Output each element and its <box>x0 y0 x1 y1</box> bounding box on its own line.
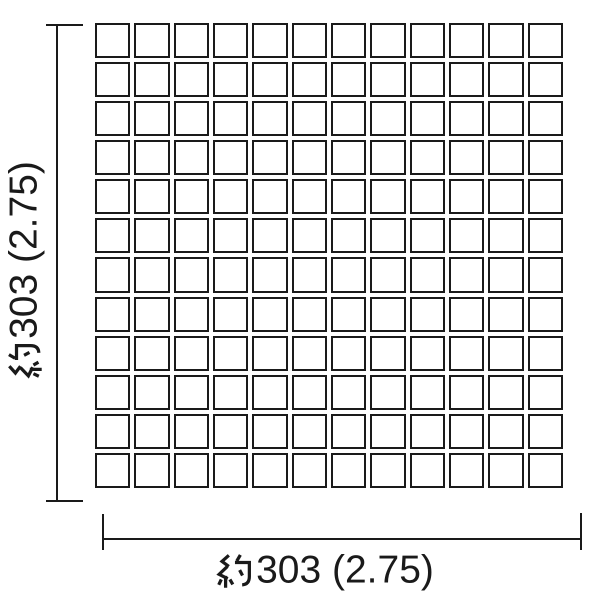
tile <box>213 414 248 449</box>
tile <box>331 375 366 410</box>
tile <box>134 62 169 97</box>
tile <box>252 140 287 175</box>
tile <box>292 179 327 214</box>
dimension-diagram-canvas: 303 (2.75) 303 (2.75) <box>0 0 600 600</box>
tile <box>331 414 366 449</box>
tile <box>370 297 405 332</box>
tile <box>174 297 209 332</box>
tile <box>331 336 366 371</box>
tile <box>528 257 563 292</box>
tile <box>488 414 523 449</box>
kanji-yaku-glyph <box>216 553 253 589</box>
tile <box>174 453 209 488</box>
tile <box>174 140 209 175</box>
tile <box>174 101 209 136</box>
tile <box>410 179 445 214</box>
tile <box>252 257 287 292</box>
tile <box>331 23 366 58</box>
tile <box>174 179 209 214</box>
tile <box>174 257 209 292</box>
tile <box>370 336 405 371</box>
tile <box>449 179 484 214</box>
tile <box>370 375 405 410</box>
tile <box>95 453 130 488</box>
tile <box>410 375 445 410</box>
tile <box>370 62 405 97</box>
kanji-yaku-glyph <box>7 342 43 379</box>
height-dimension-label: 303 (2.75) <box>5 161 44 379</box>
tile <box>449 414 484 449</box>
tile <box>370 140 405 175</box>
tile <box>488 179 523 214</box>
tile <box>292 101 327 136</box>
tile <box>134 453 169 488</box>
tile <box>213 218 248 253</box>
tile <box>213 23 248 58</box>
tile <box>370 23 405 58</box>
tile <box>252 453 287 488</box>
tile <box>449 62 484 97</box>
tile <box>213 453 248 488</box>
tile <box>134 101 169 136</box>
tile <box>213 62 248 97</box>
tile <box>449 140 484 175</box>
tile <box>370 101 405 136</box>
tile <box>488 375 523 410</box>
width-dimension-label: 303 (2.75) <box>216 551 434 590</box>
tile <box>95 375 130 410</box>
tile <box>252 62 287 97</box>
tile <box>449 297 484 332</box>
tile <box>292 414 327 449</box>
tile <box>449 375 484 410</box>
tile <box>331 453 366 488</box>
tile <box>252 336 287 371</box>
tile <box>449 101 484 136</box>
tile <box>449 336 484 371</box>
tile <box>174 218 209 253</box>
tile <box>370 179 405 214</box>
tile <box>95 414 130 449</box>
tile <box>213 257 248 292</box>
tile <box>331 297 366 332</box>
height-dimension-line <box>56 24 58 502</box>
tile <box>213 297 248 332</box>
tile <box>528 101 563 136</box>
tile <box>95 218 130 253</box>
tile <box>292 23 327 58</box>
tile <box>95 62 130 97</box>
tile <box>174 23 209 58</box>
tile <box>488 453 523 488</box>
tile <box>292 218 327 253</box>
tile <box>528 218 563 253</box>
tile <box>134 257 169 292</box>
tile <box>252 297 287 332</box>
tile <box>292 375 327 410</box>
tile <box>213 179 248 214</box>
tile <box>134 414 169 449</box>
height-dimension-tick-top <box>46 24 83 26</box>
tile <box>292 257 327 292</box>
tile <box>370 453 405 488</box>
width-dimension-tick-left <box>102 514 104 550</box>
tile <box>528 453 563 488</box>
tile <box>331 179 366 214</box>
tile <box>95 179 130 214</box>
tile <box>370 414 405 449</box>
tile <box>95 23 130 58</box>
tile <box>134 179 169 214</box>
tile <box>174 62 209 97</box>
tile <box>292 453 327 488</box>
tile <box>488 336 523 371</box>
tile <box>449 23 484 58</box>
tile <box>292 140 327 175</box>
tile <box>213 375 248 410</box>
tile <box>488 218 523 253</box>
width-dimension-line <box>102 538 582 540</box>
tile <box>174 336 209 371</box>
tile <box>95 257 130 292</box>
tile <box>134 23 169 58</box>
tile <box>410 140 445 175</box>
tile <box>410 101 445 136</box>
tile <box>488 297 523 332</box>
tile <box>174 414 209 449</box>
tile <box>528 140 563 175</box>
tile <box>488 62 523 97</box>
tile <box>292 297 327 332</box>
tile <box>95 140 130 175</box>
tile <box>331 62 366 97</box>
width-dimension-tick-right <box>580 513 582 550</box>
tile <box>410 453 445 488</box>
tile <box>449 218 484 253</box>
height-dimension-value: 303 (2.75) <box>5 161 44 339</box>
tile <box>370 218 405 253</box>
tile <box>410 414 445 449</box>
tile <box>134 297 169 332</box>
tile <box>528 297 563 332</box>
tile <box>488 257 523 292</box>
tile <box>528 179 563 214</box>
tile <box>410 297 445 332</box>
mosaic-tile-grid <box>95 23 563 488</box>
tile <box>252 375 287 410</box>
width-dimension-value: 303 (2.75) <box>256 551 434 590</box>
tile <box>174 375 209 410</box>
tile <box>331 101 366 136</box>
tile <box>331 140 366 175</box>
tile <box>331 257 366 292</box>
tile <box>95 297 130 332</box>
tile <box>292 62 327 97</box>
tile <box>528 414 563 449</box>
tile <box>331 218 366 253</box>
tile <box>95 101 130 136</box>
tile <box>252 23 287 58</box>
tile <box>213 101 248 136</box>
tile <box>134 140 169 175</box>
tile <box>252 101 287 136</box>
tile <box>528 23 563 58</box>
tile <box>410 62 445 97</box>
tile <box>449 257 484 292</box>
tile <box>292 336 327 371</box>
tile <box>410 336 445 371</box>
tile <box>134 375 169 410</box>
tile <box>252 414 287 449</box>
tile <box>488 101 523 136</box>
tile <box>449 453 484 488</box>
tile <box>528 336 563 371</box>
tile <box>488 140 523 175</box>
tile <box>410 257 445 292</box>
tile <box>134 336 169 371</box>
tile <box>488 23 523 58</box>
tile <box>134 218 169 253</box>
tile <box>213 140 248 175</box>
tile <box>410 23 445 58</box>
tile <box>410 218 445 253</box>
tile <box>528 375 563 410</box>
tile <box>95 336 130 371</box>
tile <box>370 257 405 292</box>
tile <box>213 336 248 371</box>
tile <box>252 179 287 214</box>
tile <box>528 62 563 97</box>
height-dimension-tick-bottom <box>46 500 83 502</box>
tile <box>252 218 287 253</box>
